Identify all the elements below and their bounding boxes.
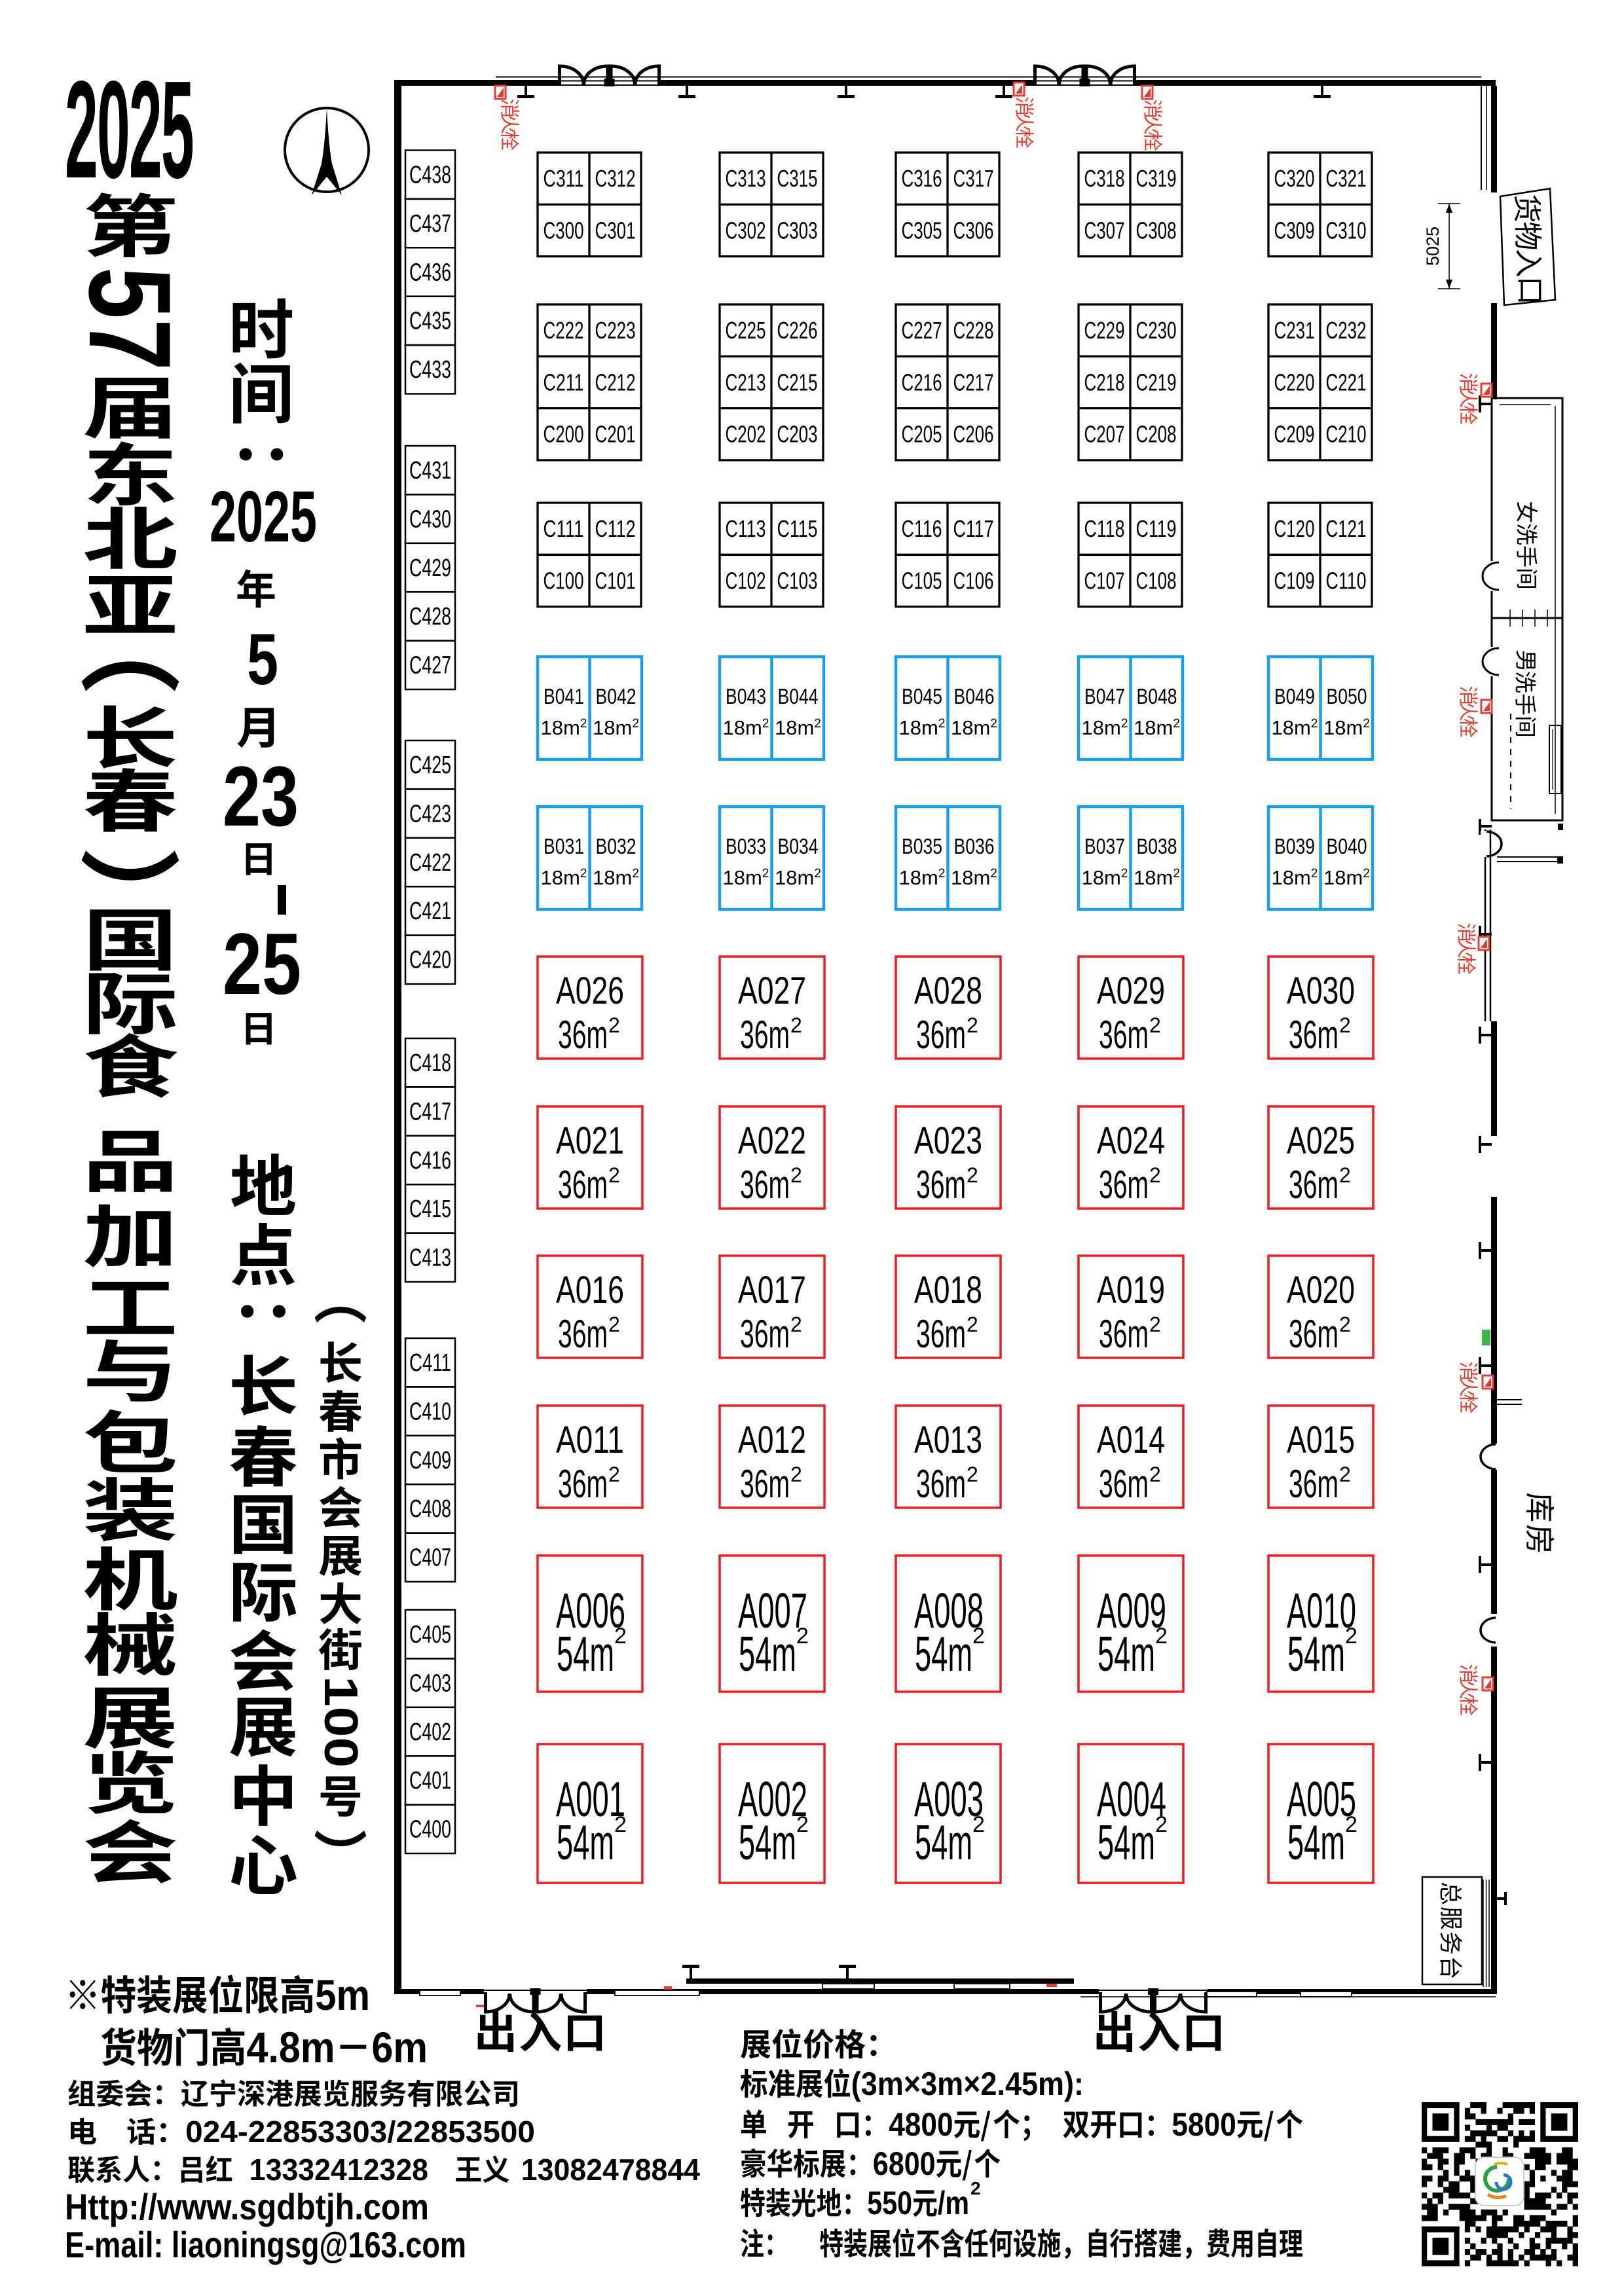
svg-text:C306: C306 [953,217,994,244]
svg-text:18m2: 18m2 [775,866,821,889]
svg-text:C313: C313 [726,165,766,192]
svg-text:C232: C232 [1326,317,1367,344]
svg-text:2: 2 [967,1463,978,1486]
svg-text:6800: 6800 [873,2145,936,2182]
svg-text:36m: 36m [1099,1163,1149,1207]
svg-text:C218: C218 [1084,369,1125,395]
svg-text:B041: B041 [544,684,584,708]
svg-text:A014: A014 [1097,1419,1165,1461]
svg-text:C418: C418 [409,1049,451,1077]
svg-text:C435: C435 [409,308,451,335]
svg-text:2: 2 [790,1313,802,1336]
svg-text:18m2: 18m2 [593,866,639,889]
svg-text:36m: 36m [916,1312,966,1356]
svg-text:2: 2 [1149,1163,1161,1187]
svg-text:C116: C116 [902,515,942,542]
svg-text:2: 2 [1155,1812,1168,1837]
svg-text:C115: C115 [777,515,818,542]
svg-text:C211: C211 [544,369,584,395]
svg-text:36m: 36m [740,1163,790,1207]
svg-text:C408: C408 [409,1495,451,1523]
svg-text:C300: C300 [544,217,584,244]
svg-text:13082478844: 13082478844 [521,2153,700,2187]
svg-text:54m: 54m [557,1815,614,1870]
svg-text:C227: C227 [902,317,942,344]
svg-text:4.8m: 4.8m [247,2024,335,2071]
svg-text:C118: C118 [1084,515,1125,542]
svg-text:C428: C428 [409,603,451,630]
svg-text:2: 2 [790,1463,802,1486]
svg-text:2: 2 [1149,1313,1161,1336]
svg-text:A026: A026 [556,970,624,1012]
svg-text:36m: 36m [1289,1163,1338,1207]
svg-text:C209: C209 [1274,421,1315,448]
svg-text:C106: C106 [953,567,994,594]
svg-text:C103: C103 [777,567,818,594]
svg-text:36m: 36m [1099,1312,1149,1356]
svg-text:C215: C215 [777,369,818,395]
svg-text:A020: A020 [1287,1269,1355,1311]
svg-text:C105: C105 [902,567,942,594]
svg-text:C400: C400 [409,1816,451,1844]
svg-text:18m2: 18m2 [951,866,997,889]
svg-text:C230: C230 [1136,317,1177,344]
svg-text:B033: B033 [726,834,766,858]
svg-text:2: 2 [972,1624,985,1649]
svg-text:C407: C407 [409,1544,451,1572]
svg-text:6m: 6m [371,2024,428,2071]
svg-text:C410: C410 [409,1398,451,1425]
svg-text:54m: 54m [915,1815,972,1870]
svg-text:5: 5 [247,619,278,700]
svg-text:C310: C310 [1326,217,1367,244]
svg-text:54m: 54m [1098,1626,1155,1681]
svg-text:B036: B036 [954,834,995,858]
svg-text:C309: C309 [1274,217,1315,244]
svg-text:18m2: 18m2 [1272,716,1318,739]
svg-text:5800: 5800 [1172,2106,1236,2143]
svg-text:A023: A023 [914,1120,982,1162]
svg-text:2025: 2025 [65,52,193,208]
svg-text:2: 2 [967,1313,978,1336]
svg-text:C213: C213 [726,369,766,395]
svg-text:C121: C121 [1326,515,1367,542]
svg-text:54m: 54m [1098,1815,1155,1870]
svg-text:2: 2 [970,2178,981,2198]
svg-text:5m: 5m [315,1971,370,2019]
svg-text:C225: C225 [726,317,766,344]
svg-text:B050: B050 [1327,684,1367,708]
svg-text:024-22853303/22853500: 024-22853303/22853500 [185,2115,535,2149]
svg-text:2: 2 [790,1163,802,1187]
svg-text:C401: C401 [409,1767,451,1795]
svg-text:54m: 54m [915,1626,972,1681]
svg-text:18m2: 18m2 [1082,866,1128,889]
svg-text:2: 2 [1339,1463,1351,1486]
svg-text:A027: A027 [738,970,806,1012]
svg-text:A029: A029 [1097,970,1165,1012]
svg-text:4800: 4800 [889,2106,953,2143]
svg-text:A022: A022 [738,1120,806,1162]
svg-text:C222: C222 [544,317,584,344]
svg-text:C318: C318 [1084,165,1125,192]
svg-text:C437: C437 [409,210,451,238]
svg-text:C117: C117 [953,515,994,542]
svg-text:B045: B045 [902,684,942,708]
svg-text:18m2: 18m2 [775,716,821,739]
svg-text:18m2: 18m2 [541,716,587,739]
svg-text:36m: 36m [1099,1013,1149,1057]
svg-text:C430: C430 [409,505,451,533]
svg-text:2: 2 [1339,1163,1351,1187]
svg-text:C301: C301 [595,217,636,244]
svg-text:C100: C100 [544,567,584,594]
svg-text:2: 2 [1155,1624,1168,1649]
svg-text:C429: C429 [409,555,451,582]
svg-text:C402: C402 [409,1719,451,1746]
svg-text:2: 2 [614,1624,627,1649]
svg-text:C416: C416 [409,1147,451,1175]
svg-text:C200: C200 [544,421,584,448]
svg-text:C302: C302 [726,217,766,244]
svg-text:36m: 36m [558,1312,608,1356]
svg-text:36m: 36m [740,1462,790,1506]
svg-text:C436: C436 [409,259,451,286]
svg-text:B037: B037 [1084,834,1125,858]
svg-text:C216: C216 [902,369,942,395]
svg-text:C305: C305 [902,217,942,244]
svg-text:Http://www.sgdbtjh.com: Http://www.sgdbtjh.com [65,2186,429,2227]
svg-text:A011: A011 [556,1419,624,1461]
svg-text:18m2: 18m2 [951,716,997,739]
svg-text:C409: C409 [409,1447,451,1474]
svg-text:A012: A012 [738,1419,806,1461]
svg-text:A019: A019 [1097,1269,1165,1311]
svg-text:36m: 36m [558,1462,608,1506]
svg-text:2: 2 [608,1463,620,1486]
svg-text:B035: B035 [902,834,942,858]
svg-text:18m2: 18m2 [1323,866,1370,889]
svg-text:B048: B048 [1137,684,1177,708]
svg-text:18m2: 18m2 [1134,866,1180,889]
svg-text:18m2: 18m2 [1134,716,1180,739]
svg-text:C119: C119 [1136,515,1177,542]
svg-text:36m: 36m [1289,1013,1338,1057]
svg-text:C422: C422 [409,849,451,877]
svg-text:A018: A018 [914,1269,982,1311]
svg-text:2: 2 [608,1013,620,1037]
svg-text:A024: A024 [1097,1120,1165,1162]
svg-text:C438: C438 [409,162,451,189]
svg-text:18m2: 18m2 [1272,866,1318,889]
svg-text:C109: C109 [1274,567,1315,594]
svg-text:B047: B047 [1084,684,1125,708]
svg-text:C421: C421 [409,898,451,925]
svg-text:36m: 36m [558,1013,608,1057]
svg-text:(3m×3m×2.45m):: (3m×3m×2.45m): [851,2066,1084,2102]
svg-text:A025: A025 [1287,1120,1355,1162]
svg-text:18m2: 18m2 [593,716,639,739]
svg-text:36m: 36m [1289,1312,1338,1356]
svg-text:C208: C208 [1136,421,1177,448]
svg-text:C431: C431 [409,457,451,484]
svg-text:C320: C320 [1274,165,1315,192]
svg-text:C107: C107 [1084,567,1125,594]
svg-text:36m: 36m [740,1312,790,1356]
svg-text:B042: B042 [596,684,637,708]
svg-text:C317: C317 [953,165,994,192]
svg-text:36m: 36m [916,1462,966,1506]
svg-text:B032: B032 [596,834,637,858]
svg-text:18m2: 18m2 [723,716,769,739]
svg-text:B038: B038 [1137,834,1177,858]
svg-text:B039: B039 [1274,834,1315,858]
svg-text:2: 2 [1149,1463,1161,1486]
svg-text:A013: A013 [914,1419,982,1461]
svg-text:C102: C102 [726,567,766,594]
svg-text:C101: C101 [595,567,636,594]
svg-text:C413: C413 [409,1245,451,1272]
svg-text:2: 2 [1149,1013,1161,1037]
svg-text:57: 57 [65,267,195,371]
svg-text:2: 2 [967,1163,978,1187]
svg-text:C417: C417 [409,1098,451,1125]
svg-text:A015: A015 [1287,1419,1355,1461]
svg-text:36m: 36m [916,1013,966,1057]
svg-text:C226: C226 [777,317,818,344]
svg-text:A028: A028 [914,970,982,1012]
svg-text:B043: B043 [726,684,766,708]
svg-text:54m: 54m [739,1626,796,1681]
svg-text:C405: C405 [409,1621,451,1649]
svg-text:C312: C312 [595,165,636,192]
svg-text:C207: C207 [1084,421,1125,448]
svg-text:C112: C112 [595,515,636,542]
svg-text:18m2: 18m2 [1082,716,1128,739]
svg-text:C229: C229 [1084,317,1125,344]
svg-text:13332412328: 13332412328 [249,2153,428,2187]
svg-text:36m: 36m [1099,1462,1149,1506]
svg-text:C111: C111 [544,515,584,542]
svg-text:54m: 54m [1287,1626,1345,1681]
svg-text:18m2: 18m2 [723,866,769,889]
svg-text:54m: 54m [739,1815,796,1870]
svg-text:C311: C311 [544,165,584,192]
svg-text:C205: C205 [902,421,942,448]
svg-text:C108: C108 [1136,567,1177,594]
svg-text:36m: 36m [916,1163,966,1207]
svg-text:2: 2 [967,1013,978,1037]
svg-text:B034: B034 [778,834,819,858]
svg-text:B046: B046 [954,684,995,708]
svg-text:B040: B040 [1327,834,1367,858]
svg-text:2: 2 [1345,1624,1357,1649]
svg-text:100: 100 [314,1676,367,1768]
svg-text:18m2: 18m2 [899,866,946,889]
svg-text:B031: B031 [544,834,584,858]
svg-text:2: 2 [790,1013,802,1037]
svg-text:A016: A016 [556,1269,624,1311]
svg-text:C201: C201 [595,421,636,448]
svg-text:5025: 5025 [1423,227,1443,266]
svg-text:C308: C308 [1136,217,1177,244]
svg-text:2: 2 [1339,1313,1351,1336]
svg-text:C315: C315 [777,165,818,192]
svg-text:C303: C303 [777,217,818,244]
svg-text:C231: C231 [1274,317,1315,344]
svg-text:25: 25 [223,916,301,1013]
svg-text:18m2: 18m2 [541,866,587,889]
svg-text:2: 2 [608,1313,620,1336]
svg-text:2: 2 [972,1812,985,1837]
svg-text:/m: /m [938,2185,969,2221]
svg-text:23: 23 [223,748,299,844]
svg-text:2: 2 [796,1812,809,1837]
svg-text:C403: C403 [409,1669,451,1697]
svg-text:C221: C221 [1326,369,1367,395]
svg-text:C425: C425 [409,752,451,779]
svg-text:C307: C307 [1084,217,1125,244]
svg-text:54m: 54m [1287,1815,1345,1870]
svg-text:C206: C206 [953,421,994,448]
svg-text:C203: C203 [777,421,818,448]
svg-text:36m: 36m [1289,1462,1338,1506]
svg-text:A030: A030 [1287,970,1355,1012]
svg-text:C321: C321 [1326,165,1367,192]
svg-text:C220: C220 [1274,369,1315,395]
svg-text:36m: 36m [740,1013,790,1057]
svg-text:C427: C427 [409,652,451,680]
svg-text:C212: C212 [595,369,636,395]
svg-text:C210: C210 [1326,421,1367,448]
svg-text:C319: C319 [1136,165,1177,192]
svg-text:C110: C110 [1326,567,1367,594]
svg-text:2: 2 [796,1624,809,1649]
svg-text:18m2: 18m2 [899,716,946,739]
svg-text:C415: C415 [409,1195,451,1223]
svg-text:C420: C420 [409,947,451,974]
svg-text:C223: C223 [595,317,636,344]
svg-text:C120: C120 [1274,515,1315,542]
svg-text:A021: A021 [556,1120,624,1162]
svg-text:C423: C423 [409,800,451,828]
svg-text:C411: C411 [409,1349,451,1377]
svg-text:2: 2 [614,1812,627,1837]
svg-text:A017: A017 [738,1269,806,1311]
svg-text:E-mail: liaoningsg@163.com: E-mail: liaoningsg@163.com [65,2224,466,2265]
svg-text:C433: C433 [409,356,451,384]
svg-text:2: 2 [1345,1812,1357,1837]
svg-text:36m: 36m [558,1163,608,1207]
svg-text:B049: B049 [1274,684,1315,708]
svg-text:54m: 54m [557,1626,614,1681]
svg-text:2: 2 [608,1163,620,1187]
svg-text:550: 550 [867,2185,912,2221]
svg-text:C113: C113 [726,515,766,542]
svg-text:C202: C202 [726,421,766,448]
svg-text:C217: C217 [953,369,994,395]
svg-text:C219: C219 [1136,369,1177,395]
svg-text:B044: B044 [778,684,819,708]
svg-text:2: 2 [1339,1013,1351,1037]
svg-text:18m2: 18m2 [1323,716,1370,739]
svg-text:2025: 2025 [210,477,317,557]
svg-text:C316: C316 [902,165,942,192]
svg-text:C228: C228 [953,317,994,344]
